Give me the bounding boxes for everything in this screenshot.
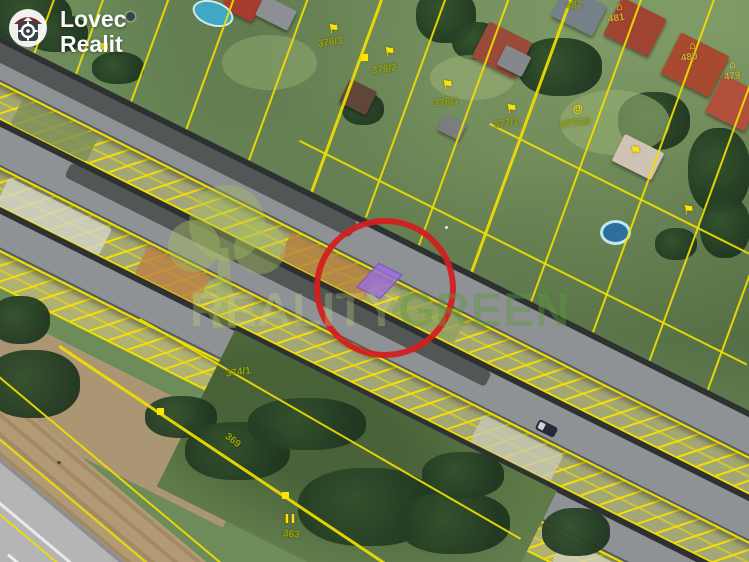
- tree: [542, 508, 610, 556]
- tree: [422, 452, 504, 498]
- parcel-label: 376/2: [371, 63, 397, 76]
- parcel-label: 376/3: [317, 36, 343, 49]
- brand-name-line2: Realit: [60, 32, 126, 57]
- building-roof: [255, 0, 297, 31]
- boundary-node: [282, 492, 289, 499]
- double-bar-icon: II: [285, 512, 297, 525]
- house-icon: ⌂: [729, 60, 736, 71]
- road-mark: [445, 226, 448, 229]
- building-roof: [603, 0, 667, 57]
- watermark-word-right: GREEN: [398, 283, 570, 336]
- flag-icon: ⚑: [505, 101, 519, 116]
- brand-logo-icon: [8, 8, 48, 48]
- brand-name-line1: Lovec: [60, 7, 126, 32]
- flag-icon: ⚑: [327, 21, 341, 36]
- spiral-icon: @: [573, 105, 583, 115]
- tree: [0, 350, 80, 418]
- house-icon: ⌂: [689, 41, 696, 52]
- brand-logo-text: Lovec Realit: [60, 7, 126, 58]
- flag-icon: ⚑: [629, 143, 643, 158]
- brand-logo-dot: [126, 12, 135, 21]
- tree: [0, 296, 50, 344]
- aerial-map[interactable]: 376/3 376/2 376/1 377/1 377/10 482 481 4…: [0, 0, 749, 562]
- parcel-label: 377/1: [493, 117, 519, 130]
- brand-logo[interactable]: Lovec Realit: [8, 6, 198, 58]
- boundary-node: [361, 54, 368, 61]
- house-icon: ⌂: [616, 2, 623, 13]
- tree: [518, 38, 602, 96]
- car-windshield: [537, 422, 545, 431]
- flag-icon: ⚑: [682, 202, 696, 217]
- grass-patch: [222, 35, 317, 90]
- watermark-word-left: REALITY: [190, 283, 398, 336]
- flag-icon: ⚑: [441, 77, 455, 92]
- parcel-label: 376/1: [433, 96, 459, 109]
- parcel-label: 363: [283, 529, 301, 541]
- watermark-text: REALITYGREEN: [190, 286, 570, 333]
- boundary-node: [157, 408, 164, 415]
- pedestrian: [57, 461, 61, 464]
- tree: [248, 398, 366, 450]
- flag-icon: ⚑: [383, 44, 397, 59]
